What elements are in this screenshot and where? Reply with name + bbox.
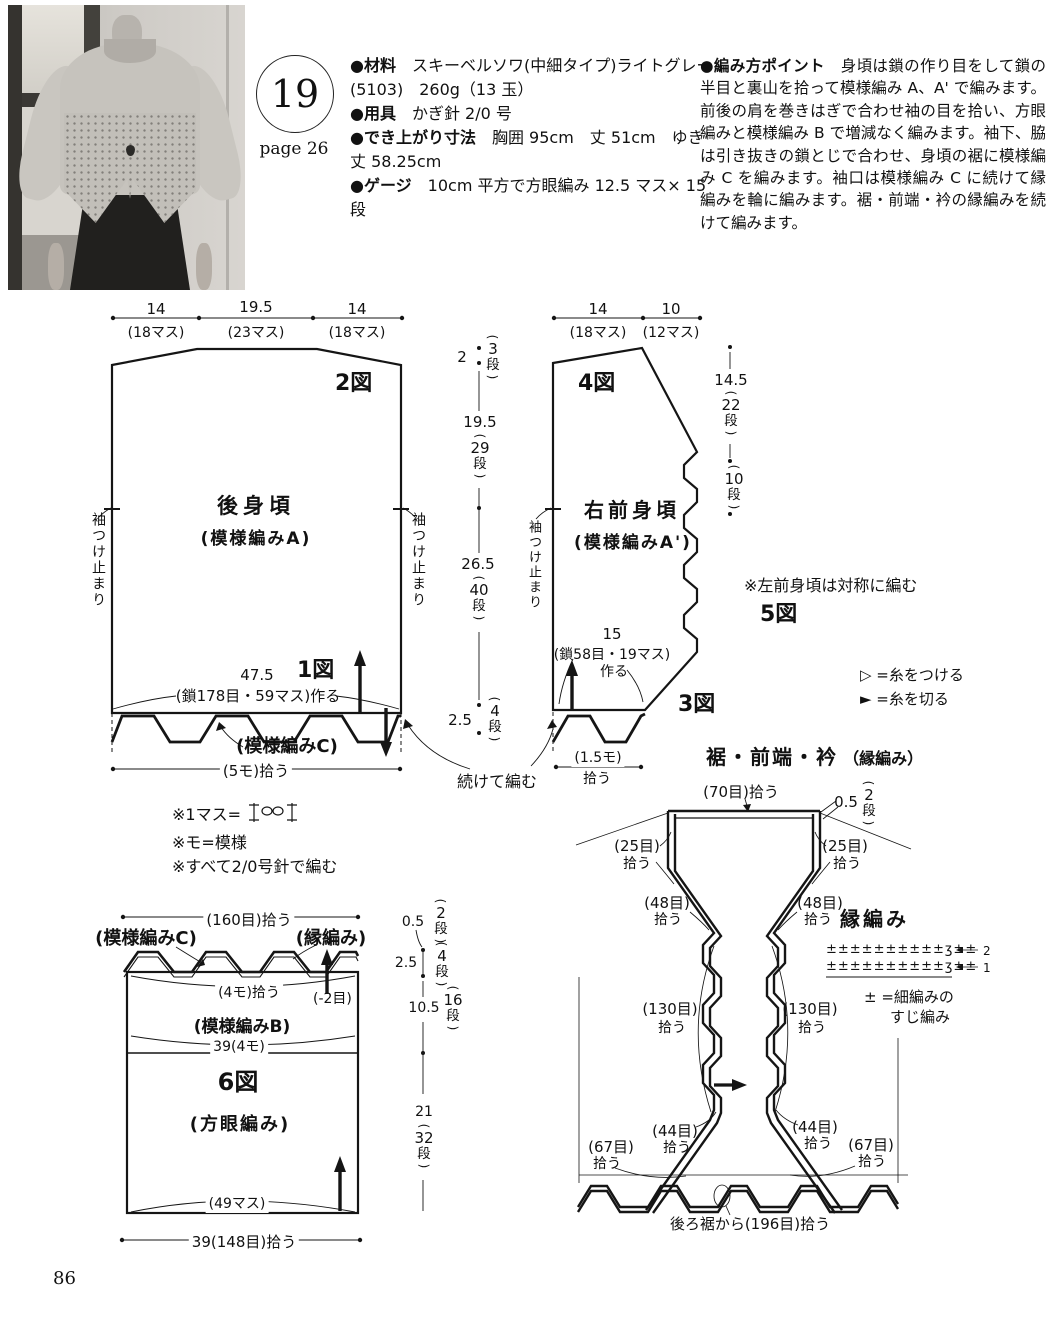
back-meas2-sub: (23マス) xyxy=(228,322,285,342)
back-sleeve-stop-left: 袖つけ止まり xyxy=(88,512,108,608)
back-pattern: (模様編みA) xyxy=(201,524,312,549)
back-caston-num: 47.5 xyxy=(240,666,273,684)
page-number: 86 xyxy=(53,1268,76,1289)
back-col-v3: 26.5 xyxy=(461,555,494,573)
edging-pick-word: 拾う xyxy=(663,1137,691,1157)
fig6-label: 6図 xyxy=(218,1062,259,1097)
note-1masu: ※1マス= xyxy=(172,801,241,825)
edging-v05: 0.5 xyxy=(834,793,858,811)
front-symmetry-note: ※左前身頃は対称に編む xyxy=(744,572,917,596)
back-meas2-num: 19.5 xyxy=(239,298,272,316)
front-meas1-num: 14 xyxy=(588,300,607,318)
edging-pick-word: 拾う xyxy=(623,853,651,873)
edging-pick130-left: (130目) xyxy=(642,998,697,1019)
fig3-label: 3図 xyxy=(678,686,715,718)
edging-pick-word: 拾う xyxy=(654,909,682,929)
front-meas1-sub: (18マス) xyxy=(570,322,627,342)
back-col-b4: (4段) xyxy=(488,695,502,743)
front-caston-num: 15 xyxy=(602,625,621,643)
back-col-b2: (29段) xyxy=(470,432,489,480)
sleeve-col-v4: 21 xyxy=(415,1104,433,1120)
fig4-label: 4図 xyxy=(578,365,615,397)
sleeve-diagram xyxy=(122,917,423,1240)
front-hem-pick1: (1.5モ) xyxy=(571,747,624,767)
edging-pick130-right: (130目) xyxy=(782,998,837,1019)
sleeve-patternB: (模様編みB) xyxy=(194,1012,291,1037)
front-caston2: 作る xyxy=(600,661,628,681)
front-pattern: (模様編みA') xyxy=(574,528,692,553)
row2-num: 2 xyxy=(983,944,991,958)
sleeve-col-b4: (32段) xyxy=(414,1122,433,1170)
row1-num: 1 xyxy=(983,961,991,975)
edging-pick-word: 拾う xyxy=(798,1017,826,1037)
legend-attach-yarn: ▷ =糸をつける xyxy=(860,664,964,685)
edging-pick-word: 拾う xyxy=(593,1153,621,1173)
edging-pick-word: 拾う xyxy=(658,1017,686,1037)
back-col-b3: (40段) xyxy=(469,574,488,622)
back-col-v4: 2.5 xyxy=(448,711,472,729)
back-col-v2: 19.5 xyxy=(463,413,496,431)
back-col-b1: (3段) xyxy=(486,333,500,381)
edging-pick-word: 拾う xyxy=(833,853,861,873)
stitch-legend-2: すじ編み xyxy=(890,1006,950,1027)
back-caston: (鎖178目・59マス)作る xyxy=(176,685,340,706)
sleeve-col-v3: 10.5 xyxy=(405,1000,442,1016)
edging-bottom-pick: 後ろ裾から(196目)拾う xyxy=(670,1213,830,1234)
front-name: 右前身頃 xyxy=(584,494,680,523)
edging-label: 縁編み xyxy=(840,903,909,932)
back-meas1-sub: (18マス) xyxy=(128,322,185,342)
fig1-label: 1図 xyxy=(297,652,334,684)
back-meas3-sub: (18マス) xyxy=(329,322,386,342)
edging-top-pick: (70目)拾う xyxy=(703,781,779,802)
front-col-v1: 14.5 xyxy=(714,371,747,389)
fig2-label: 2図 xyxy=(335,365,372,397)
edging-pick-word: 拾う xyxy=(804,1133,832,1153)
back-sleeve-stop-right: 袖つけ止まり xyxy=(408,512,428,608)
stitch-note-symbol xyxy=(249,803,297,822)
pattern-page: 19 page 26 ●材料 スキーベルソワ(中細タイプ)ライトグレー (510… xyxy=(0,0,1050,1332)
back-meas1-num: 14 xyxy=(146,300,165,318)
stitch-row-1: ±±±±±±±±±±ʒ±± xyxy=(826,959,977,974)
sleeve-w39: 39(4モ) xyxy=(210,1036,268,1056)
front-sleeve-stop: 袖つけ止まり xyxy=(524,520,543,610)
sleeve-pick4mo: (4モ)拾う xyxy=(215,982,283,1002)
front-meas2-sub: (12マス) xyxy=(643,322,700,342)
back-hem-pick: (5モ)拾う xyxy=(220,760,292,781)
sleeve-col-b3: (16段) xyxy=(443,984,462,1032)
front-col-b2: (10段) xyxy=(724,463,743,511)
sleeve-minus2: (-2目) xyxy=(313,988,352,1008)
sleeve-edge-label: (縁編み) xyxy=(296,924,366,950)
edging-b05: (2段) xyxy=(862,779,876,827)
note-hook: ※すべて2/0号針で編む xyxy=(172,853,337,877)
sleeve-w49: (49マス) xyxy=(206,1193,269,1213)
front-col-b1: (22段) xyxy=(721,389,740,437)
sleeve-bottom-pick: 39(148目)拾う xyxy=(189,1231,299,1252)
back-meas3-num: 14 xyxy=(347,300,366,318)
note-mo: ※モ=模様 xyxy=(172,829,247,853)
sleeve-col-b1: (2段) xyxy=(434,897,448,945)
front-hem-pick2: 拾う xyxy=(580,768,614,788)
sleeve-col-b2: (4段) xyxy=(435,940,449,988)
stitch-row-2: ±±±±±±±±±±ʒ±± xyxy=(826,942,977,957)
edging-pick-word: 拾う xyxy=(858,1151,886,1171)
continue-annotation xyxy=(408,725,553,769)
sleeve-top-pick: (160目)拾う xyxy=(203,909,294,930)
sleeve-square-pattern: (方眼編み) xyxy=(190,1110,290,1136)
continue-label: 続けて編む xyxy=(457,768,537,792)
edging-pick-word: 拾う xyxy=(804,909,832,929)
front-meas2-num: 10 xyxy=(661,300,680,318)
fig5-label: 5図 xyxy=(760,596,797,628)
stitch-legend-1: ± =細編みの xyxy=(864,986,954,1007)
sleeve-patternC: (模様編みC) xyxy=(95,924,197,950)
sleeve-col-v2: 2.5 xyxy=(395,955,417,971)
back-name: 後身頃 xyxy=(217,490,295,520)
back-col-v1: 2 xyxy=(457,348,467,366)
legend-cut-yarn: ► =糸を切る xyxy=(860,688,949,709)
back-hem-pattern: (模様編みC) xyxy=(236,732,338,758)
sleeve-col-v1: 0.5 xyxy=(402,914,424,930)
edging-title: 裾・前端・衿 （縁編み） xyxy=(706,741,923,770)
